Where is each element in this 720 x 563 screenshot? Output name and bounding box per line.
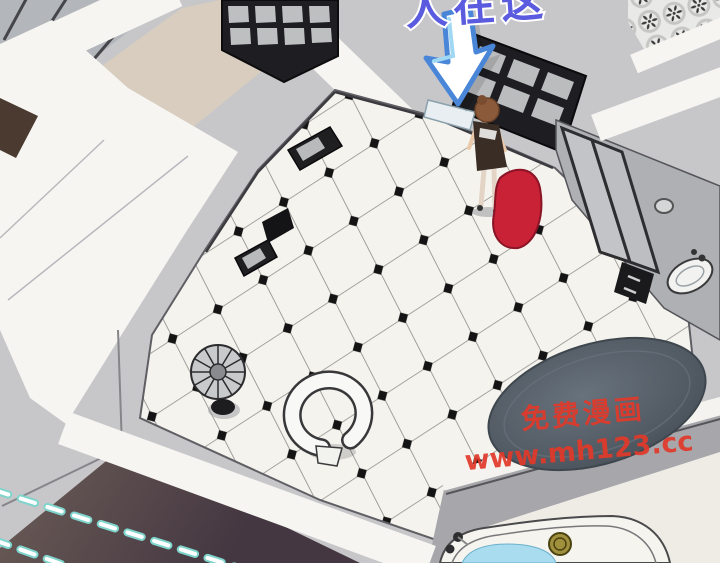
lamp-base: [211, 399, 235, 415]
chair-base: [316, 446, 342, 466]
canister: [655, 199, 673, 213]
bathtub-drain: [549, 533, 571, 555]
apartment-3d-view: 人在这 免费漫画 www.mh123.cc: [0, 0, 720, 563]
comic-panel: 人在这 免费漫画 www.mh123.cc: [0, 0, 720, 563]
red-chair: [493, 170, 541, 248]
